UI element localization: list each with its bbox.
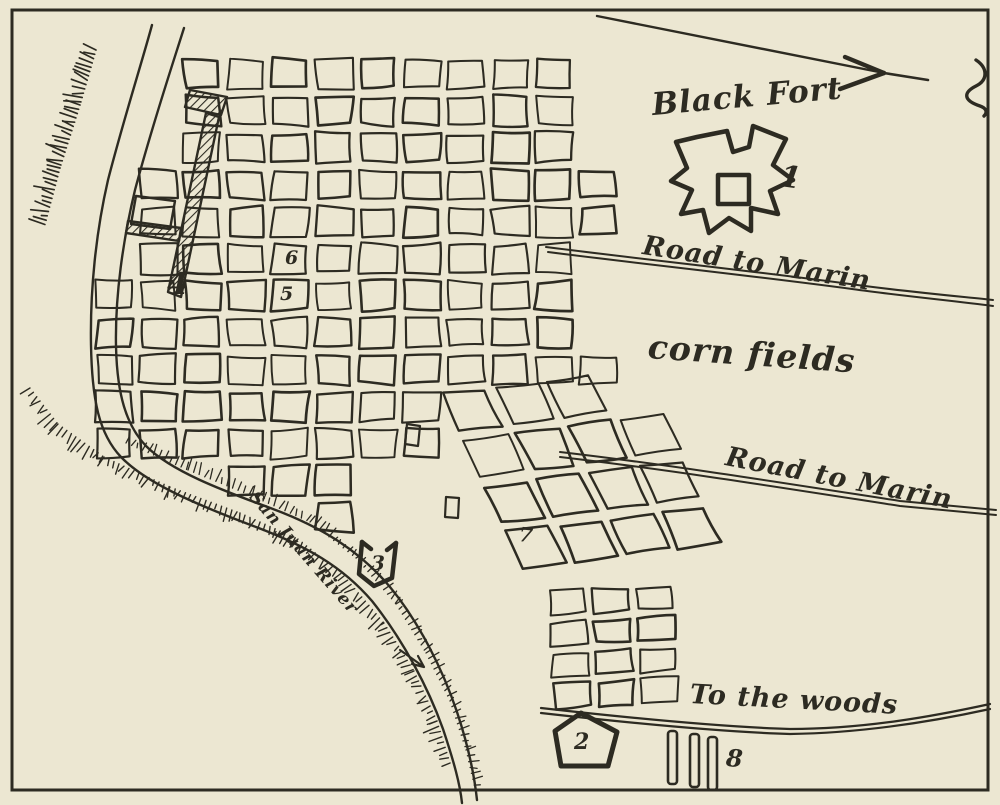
diagonal-block — [547, 375, 606, 418]
city-block — [271, 392, 310, 423]
bank-tick — [60, 113, 76, 118]
bank-tick — [77, 443, 85, 452]
bank-tick — [434, 747, 445, 751]
bank-tick — [119, 466, 125, 471]
bank-tick — [122, 468, 129, 478]
city-block — [492, 244, 529, 275]
bank-tick — [137, 443, 138, 448]
bank-tick — [48, 424, 58, 434]
map-page: Black Fort Road to Marin corn fields Roa… — [0, 0, 1000, 805]
bank-tick — [388, 592, 393, 595]
city-block — [271, 317, 307, 349]
bank-tick — [73, 93, 84, 94]
city-block — [315, 428, 353, 459]
bank-tick — [416, 691, 423, 693]
bank-tick — [364, 566, 366, 568]
city-block — [139, 169, 178, 198]
city-block — [359, 429, 398, 457]
city-block — [361, 133, 397, 163]
bank-tick — [427, 721, 437, 724]
city-block — [182, 59, 218, 88]
bank-tick — [427, 716, 435, 720]
city-block — [314, 317, 351, 346]
city-block — [95, 280, 132, 309]
city-block — [316, 392, 353, 423]
bank-tick — [57, 427, 63, 435]
bank-tick — [40, 410, 47, 413]
bank-tick — [375, 622, 383, 630]
marker-2: 2 — [574, 731, 590, 753]
city-block — [97, 428, 130, 458]
bank-tick — [368, 610, 373, 618]
bank-tick — [360, 605, 369, 613]
city-block — [491, 132, 529, 163]
city-block — [317, 245, 351, 271]
bank-tick — [47, 169, 59, 172]
city-block — [227, 59, 263, 90]
bank-tick — [62, 430, 67, 437]
city-block — [315, 58, 354, 90]
bank-tick — [132, 440, 136, 445]
city-block — [403, 172, 442, 199]
city-block — [579, 357, 617, 385]
city-block — [537, 317, 573, 348]
bank-tick — [429, 737, 442, 742]
city-block — [535, 131, 573, 163]
city-block — [402, 392, 441, 422]
bank-tick — [174, 489, 175, 496]
city-block — [359, 392, 394, 422]
city-block — [271, 57, 306, 86]
bank-tick — [129, 471, 134, 478]
city-block — [97, 355, 132, 385]
bank-tick — [53, 136, 70, 140]
bank-tick — [461, 734, 469, 736]
bank-tick — [72, 86, 84, 89]
city-block — [403, 133, 441, 162]
city-block — [493, 60, 528, 89]
bank-tick — [215, 504, 217, 508]
river-west-bank — [91, 25, 462, 803]
bank-tick — [79, 58, 92, 63]
bank-tick — [31, 210, 49, 212]
city-block — [448, 355, 485, 384]
bank-tick — [440, 753, 447, 756]
city-block — [404, 280, 441, 311]
bank-tick — [238, 482, 242, 490]
city-block — [318, 171, 350, 199]
black-fort-star — [671, 126, 793, 233]
diagonal-block — [561, 522, 618, 563]
bank-tick — [47, 165, 60, 168]
diagonal-block — [505, 526, 566, 569]
city-block — [534, 280, 572, 311]
bank-tick — [285, 502, 288, 511]
bank-tick — [53, 151, 64, 156]
city-block — [403, 98, 439, 126]
bank-tick — [67, 434, 71, 444]
marker-6: 6 — [285, 249, 299, 268]
city-block — [359, 355, 396, 385]
city-block — [536, 207, 574, 238]
suburb-block — [598, 679, 636, 707]
bank-tick — [456, 716, 466, 718]
bank-tick — [405, 614, 410, 619]
suburb-block — [553, 681, 591, 709]
city-block — [230, 393, 265, 420]
city-block — [270, 428, 307, 460]
city-block — [448, 172, 485, 200]
bank-tick — [43, 200, 51, 203]
bank-tick — [395, 646, 399, 650]
city-block — [492, 319, 529, 346]
bank-tick — [438, 742, 444, 743]
city-block — [360, 279, 396, 311]
diagonal-block — [496, 384, 554, 424]
city-block — [227, 280, 266, 311]
city-block — [449, 244, 486, 273]
bank-tick — [43, 178, 56, 181]
bank-tick — [181, 459, 185, 467]
diagonal-block — [663, 508, 722, 549]
bank-tick — [310, 516, 315, 522]
bank-tick — [290, 507, 294, 514]
city-block — [490, 206, 529, 236]
city-block — [447, 97, 484, 125]
bank-tick — [194, 462, 197, 472]
city-block — [404, 354, 441, 383]
bank-tick — [29, 392, 34, 396]
city-block — [316, 282, 351, 310]
bank-tick — [379, 628, 387, 631]
city-block — [446, 136, 483, 163]
bank-tick — [113, 462, 114, 468]
map-drawing — [0, 0, 1000, 805]
bank-tick — [442, 763, 450, 766]
city-block — [138, 353, 175, 384]
city-block — [536, 96, 573, 125]
bank-tick — [307, 515, 312, 521]
suburb-block — [639, 648, 676, 674]
city-block — [403, 243, 441, 275]
bank-tick — [221, 478, 222, 484]
script-flourish-icon — [967, 60, 986, 116]
isolated-buildings — [405, 424, 459, 518]
marker-4: 4 — [167, 270, 189, 300]
bank-tick — [377, 632, 390, 637]
city-block — [271, 355, 305, 384]
suburb-block — [549, 620, 588, 647]
diagonal-block — [515, 429, 574, 469]
bank-tick — [45, 182, 55, 186]
city-block — [446, 319, 483, 346]
bank-tick — [108, 459, 109, 465]
city-block — [273, 98, 309, 127]
bank-tick — [440, 758, 449, 759]
river-flow-arrow-icon — [400, 650, 424, 667]
city-block — [403, 207, 438, 238]
city-block — [580, 206, 617, 235]
bank-tick — [399, 607, 402, 610]
bank-tick — [329, 528, 336, 537]
city-block — [227, 319, 266, 345]
city-block — [229, 429, 263, 455]
city-block — [404, 428, 439, 458]
city-block — [359, 170, 396, 199]
marker-8: 8 — [725, 746, 744, 771]
bank-tick — [55, 125, 72, 131]
city-block — [449, 208, 483, 235]
diagonal-block — [463, 434, 524, 477]
city-block — [315, 464, 351, 495]
diagonal-block — [621, 414, 681, 455]
city-block — [226, 172, 264, 200]
city-block — [316, 355, 350, 386]
city-block — [359, 242, 398, 273]
city-block — [359, 316, 395, 349]
bank-tick — [199, 463, 201, 475]
city-block — [361, 58, 394, 88]
bank-tick — [320, 522, 326, 530]
bank-tick — [139, 475, 144, 483]
suburb-block — [550, 653, 590, 678]
diagonal-block — [443, 391, 503, 431]
bank-tick — [233, 479, 236, 488]
bank-tick — [418, 639, 422, 640]
bank-tick — [82, 446, 89, 459]
bank-tick — [216, 470, 222, 482]
city-block — [184, 354, 220, 383]
bank-tick — [210, 469, 212, 479]
city-block — [361, 98, 395, 127]
city-block — [228, 357, 266, 386]
suburb-block — [593, 619, 632, 643]
bank-tick — [62, 131, 71, 135]
city-block — [226, 135, 264, 162]
riverbank-hatching — [20, 44, 482, 791]
city-block — [361, 209, 394, 237]
marker-5: 5 — [280, 285, 294, 304]
diagonal-block — [484, 483, 545, 522]
bank-tick — [470, 768, 477, 769]
city-block — [182, 430, 218, 459]
bank-tick — [20, 388, 30, 394]
diagonal-block — [536, 474, 598, 517]
suburb-block — [636, 587, 673, 610]
bank-tick — [412, 686, 421, 687]
suburb-block — [595, 648, 634, 674]
city-block — [183, 317, 219, 347]
marker-7: 7 — [518, 524, 535, 545]
bank-tick — [33, 217, 46, 221]
bank-tick — [397, 656, 404, 659]
city-block — [316, 97, 354, 126]
city-block — [579, 171, 617, 197]
bank-tick — [397, 660, 407, 665]
city-block — [270, 171, 307, 200]
diagonal-block — [611, 514, 670, 554]
city-block — [95, 319, 133, 349]
bank-tick — [279, 501, 284, 508]
city-block — [492, 354, 528, 385]
bank-tick — [205, 470, 209, 476]
bank-tick — [422, 706, 430, 711]
city-block — [230, 206, 263, 238]
bank-tick — [71, 79, 86, 84]
bank-tick — [137, 473, 139, 480]
city-block — [271, 134, 308, 162]
city-block — [315, 131, 350, 163]
bank-tick — [401, 665, 410, 667]
bank-tick — [428, 711, 433, 713]
suburb-block — [592, 586, 630, 614]
city-block — [141, 391, 177, 421]
city-block — [183, 391, 222, 421]
bank-tick — [296, 509, 297, 516]
bank-tick — [84, 44, 97, 50]
bank-tick — [301, 511, 302, 518]
bank-tick — [412, 681, 419, 683]
city-block — [142, 319, 178, 349]
lower-suburb-grid — [547, 584, 680, 710]
city-block — [226, 96, 265, 124]
diagonal-block — [589, 467, 648, 509]
bank-tick — [244, 486, 246, 493]
city-block — [492, 282, 530, 310]
suburb-block — [640, 676, 680, 704]
bank-tick — [406, 676, 416, 682]
bank-tick — [387, 642, 396, 645]
city-block — [404, 60, 442, 88]
bank-tick — [402, 611, 407, 614]
suburb-block — [636, 615, 676, 641]
bank-tick — [430, 732, 440, 734]
bank-tick — [116, 464, 119, 474]
city-block — [493, 94, 527, 127]
city-block — [491, 168, 529, 200]
bank-tick — [44, 418, 53, 427]
city-block — [185, 280, 222, 310]
city-block — [406, 317, 441, 347]
city-block — [448, 280, 482, 310]
bank-tick — [42, 196, 52, 199]
bank-tick — [465, 746, 471, 747]
bank-tick — [63, 94, 82, 97]
barracks-bars — [668, 731, 717, 790]
bank-tick — [239, 513, 240, 522]
city-block — [272, 465, 310, 496]
bank-tick — [90, 450, 93, 458]
bank-tick — [55, 140, 68, 144]
city-block — [228, 244, 264, 272]
city-block — [535, 169, 571, 200]
marker-1: 1 — [778, 162, 804, 195]
bank-tick — [371, 614, 376, 619]
city-block — [447, 61, 485, 90]
suburb-block — [549, 588, 586, 615]
marker-3: 3 — [371, 553, 386, 573]
city-block — [536, 59, 570, 88]
city-block — [270, 207, 310, 237]
city-block — [315, 205, 353, 236]
